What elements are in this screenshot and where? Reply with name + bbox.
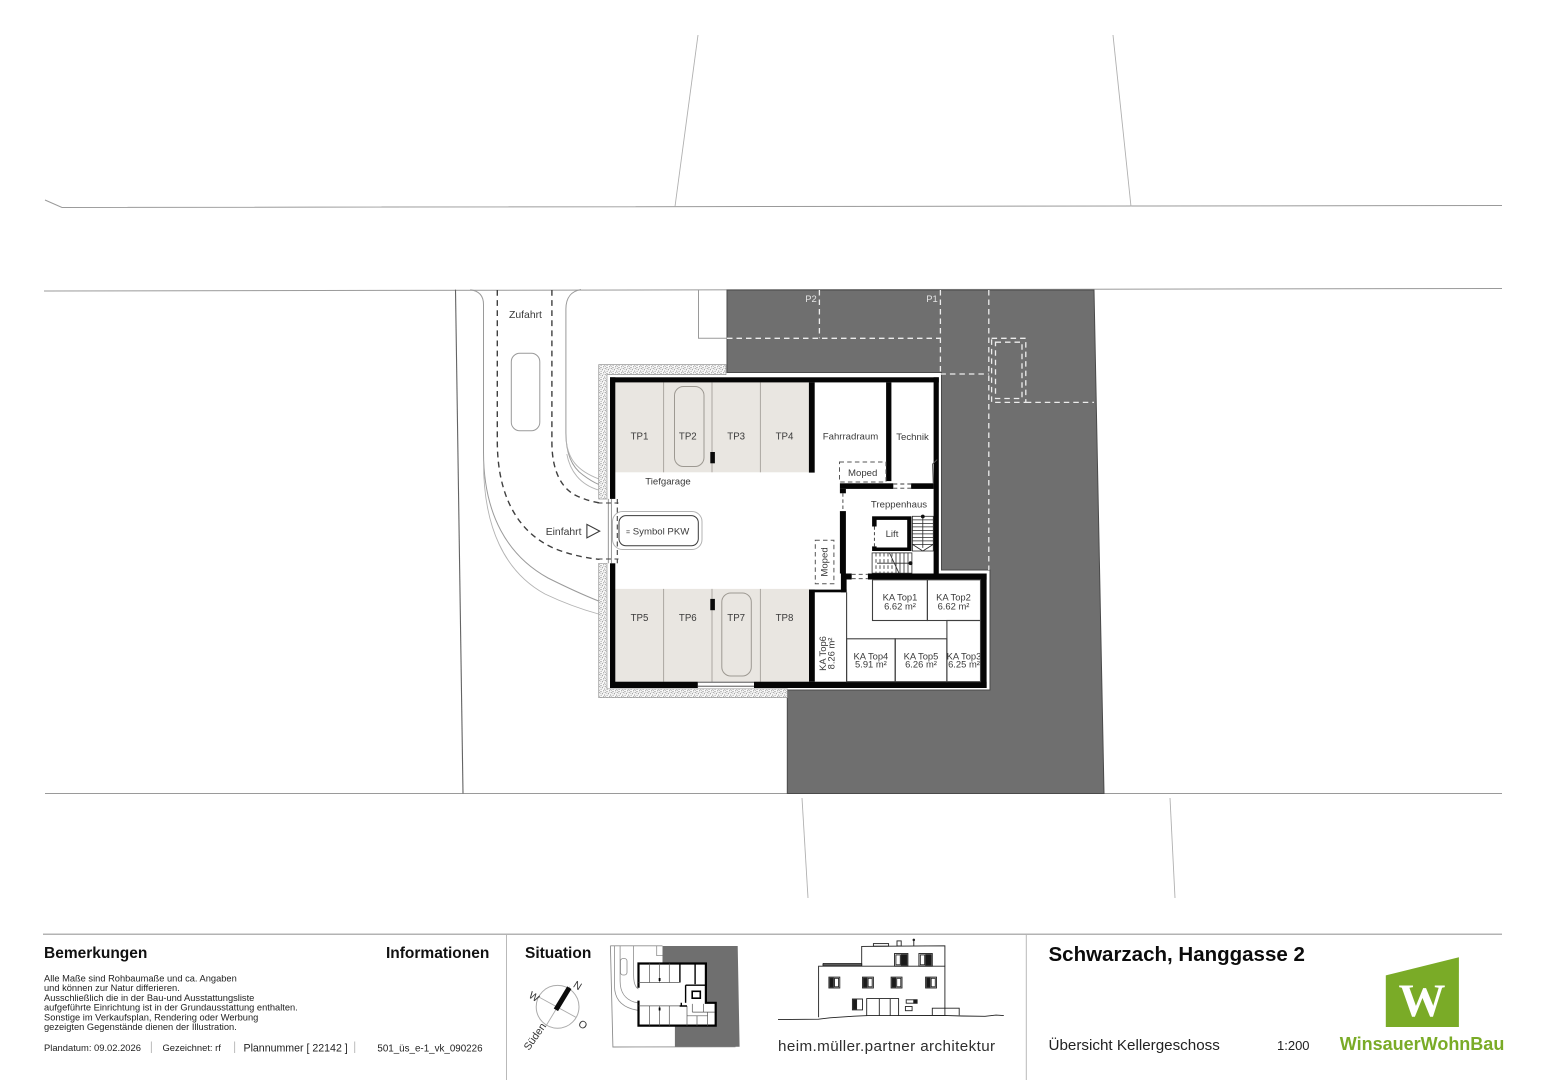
svg-text:Moped: Moped <box>848 468 877 479</box>
svg-text:TP7: TP7 <box>727 613 745 624</box>
svg-text:und können zur Natur differier: und können zur Natur differieren. <box>44 983 180 993</box>
svg-text:8.26 m²: 8.26 m² <box>826 638 837 670</box>
svg-text:6.62 m²: 6.62 m² <box>938 600 970 611</box>
svg-text:Fahrradraum: Fahrradraum <box>823 432 878 443</box>
svg-text:WinsauerWohnBau: WinsauerWohnBau <box>1340 1034 1505 1054</box>
svg-text:Sonstige im Verkaufsplan, Rend: Sonstige im Verkaufsplan, Rendering oder… <box>44 1012 258 1022</box>
svg-text:Tiefgarage: Tiefgarage <box>645 477 691 488</box>
svg-text:5.91 m²: 5.91 m² <box>855 659 887 670</box>
svg-text:Übersicht Kellergeschoss: Übersicht Kellergeschoss <box>1049 1036 1221 1054</box>
svg-text:6.25 m²: 6.25 m² <box>948 659 980 670</box>
svg-text:TP5: TP5 <box>631 613 649 624</box>
svg-text:6.26 m²: 6.26 m² <box>905 659 937 670</box>
svg-text:P2: P2 <box>805 293 816 304</box>
svg-text:heim.müller.partner architekt: heim.müller.partner architektur <box>778 1038 996 1055</box>
svg-text:6.62 m²: 6.62 m² <box>884 600 916 611</box>
svg-text:Technik: Technik <box>896 432 929 443</box>
svg-text:TP4: TP4 <box>776 432 794 443</box>
svg-text:Informationen: Informationen <box>386 945 489 962</box>
svg-text:Ausschließlich die in der Bau-: Ausschließlich die in der Bau-und Aussta… <box>44 993 254 1003</box>
svg-text:Plandatum: 09.02.2026: Plandatum: 09.02.2026 <box>44 1042 141 1053</box>
svg-text:TP6: TP6 <box>679 613 697 624</box>
svg-text:Schwarzach, Hanggasse 2: Schwarzach, Hanggasse 2 <box>1049 943 1305 966</box>
svg-text:Treppenhaus: Treppenhaus <box>871 500 927 511</box>
svg-text:W: W <box>1399 975 1446 1027</box>
svg-text:Plannummer [ 22142 ]: Plannummer [ 22142 ] <box>244 1043 348 1055</box>
svg-text:1:200: 1:200 <box>1277 1038 1310 1053</box>
svg-text:= Symbol PKW: = Symbol PKW <box>626 527 690 538</box>
svg-text:Moped: Moped <box>820 547 831 576</box>
svg-text:501_üs_e-1_vk_090226: 501_üs_e-1_vk_090226 <box>377 1044 483 1055</box>
svg-text:Situation: Situation <box>525 945 591 962</box>
svg-text:gezeigten Gegenstände dienen d: gezeigten Gegenstände dienen der Illustr… <box>44 1022 237 1032</box>
svg-text:Lift: Lift <box>886 529 899 540</box>
svg-text:TP8: TP8 <box>776 613 794 624</box>
svg-text:Gezeichnet: rf: Gezeichnet: rf <box>163 1042 222 1053</box>
svg-text:Bemerkungen: Bemerkungen <box>44 945 147 962</box>
svg-text:P1: P1 <box>926 293 937 304</box>
svg-text:TP3: TP3 <box>727 432 745 443</box>
svg-text:TP1: TP1 <box>631 432 649 443</box>
svg-text:Zufahrt: Zufahrt <box>509 310 542 321</box>
svg-text:Einfahrt: Einfahrt <box>546 527 582 538</box>
svg-text:aufgeführte Einrichtung ist in: aufgeführte Einrichtung ist in der Grund… <box>44 1003 298 1013</box>
svg-text:TP2: TP2 <box>679 432 697 443</box>
svg-text:Alle Maße sind Rohbaumaße und: Alle Maße sind Rohbaumaße und ca. Angabe… <box>44 974 237 984</box>
